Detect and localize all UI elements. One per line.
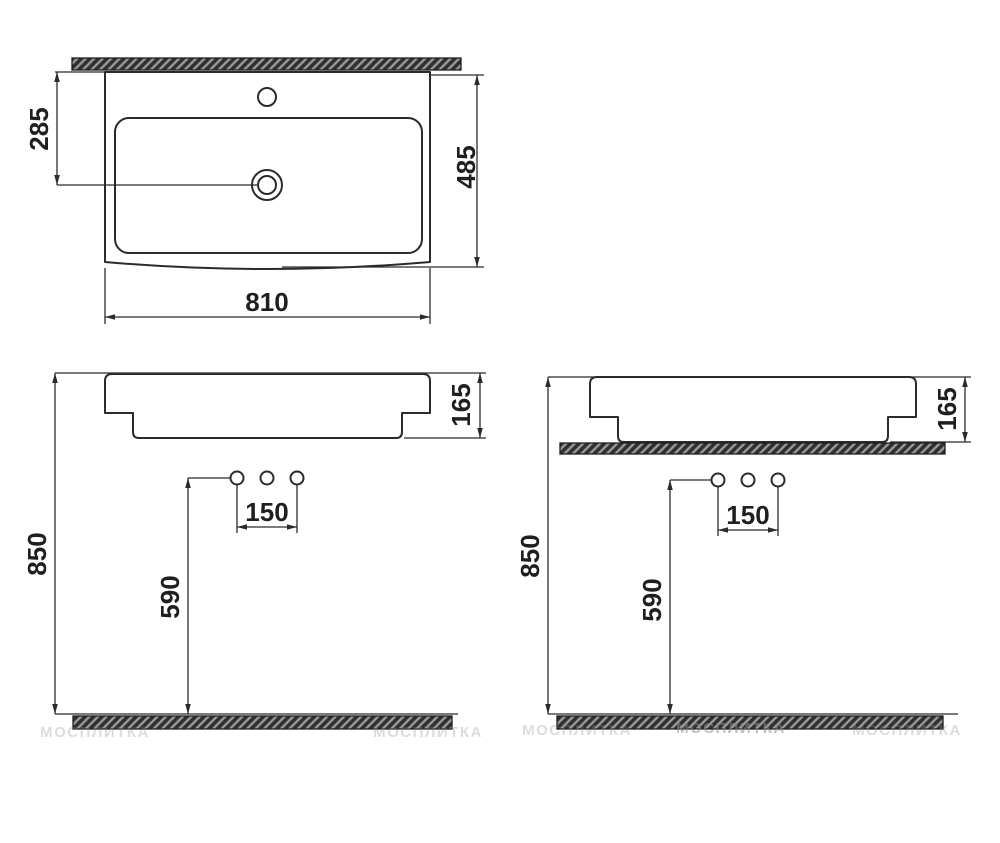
arrowhead xyxy=(185,704,191,714)
front-view-countertop: 850 165 590 150 xyxy=(515,377,971,739)
dim-hole-spacing: 150 xyxy=(718,487,778,537)
dim-label-590: 590 xyxy=(637,578,667,621)
plan-view: 285 485 810 xyxy=(24,58,484,324)
countertop-hatch-bar xyxy=(560,443,945,454)
dim-hole-spacing: 150 xyxy=(237,485,297,534)
dim-rim-height: 850 xyxy=(22,373,58,714)
dim-label-165: 165 xyxy=(932,387,962,430)
arrowhead xyxy=(54,72,60,82)
dim-total-width: 810 xyxy=(105,268,430,324)
dim-drain-height: 590 xyxy=(637,480,673,714)
watermark-text: МОСПЛИТКА xyxy=(40,724,150,741)
watermark-text: МОСПЛИТКА xyxy=(676,720,786,737)
dim-label-810: 810 xyxy=(245,287,288,317)
arrowhead xyxy=(420,314,430,320)
arrowhead xyxy=(477,428,483,438)
drawing-canvas: 285 485 810 850 xyxy=(0,0,1000,843)
sink-profile-outline xyxy=(105,374,430,438)
dim-label-850: 850 xyxy=(22,532,52,575)
dim-label-285: 285 xyxy=(24,107,54,150)
arrowhead xyxy=(545,377,551,387)
washbasin-technical-drawing: 285 485 810 850 xyxy=(0,0,1000,843)
arrowhead xyxy=(477,373,483,383)
mounting-hole xyxy=(231,472,244,485)
arrowhead xyxy=(54,175,60,185)
mounting-hole xyxy=(261,472,274,485)
drain-inner-circle xyxy=(258,176,276,194)
arrowhead xyxy=(962,377,968,387)
arrowhead xyxy=(52,373,58,383)
dim-label-485: 485 xyxy=(451,145,481,188)
tap-hole xyxy=(258,88,276,106)
arrowhead xyxy=(667,480,673,490)
mounting-hole xyxy=(742,474,755,487)
arrowhead xyxy=(105,314,115,320)
mounting-hole xyxy=(712,474,725,487)
watermark-text: МОСПЛИТКА xyxy=(852,722,962,739)
mounting-hole xyxy=(291,472,304,485)
watermark-text: МОСПЛИТКА xyxy=(522,722,632,739)
dim-basin-height: 165 xyxy=(890,377,971,442)
dim-label-590: 590 xyxy=(155,575,185,618)
arrowhead xyxy=(545,704,551,714)
dim-label-150: 150 xyxy=(726,500,769,530)
arrowhead xyxy=(962,432,968,442)
dim-label-850: 850 xyxy=(515,534,545,577)
dim-drain-height: 590 xyxy=(155,478,191,714)
dim-depth-to-drain: 285 xyxy=(24,72,105,185)
mounting-hole xyxy=(772,474,785,487)
wall-hatch-bar xyxy=(72,58,461,70)
dim-total-depth: 485 xyxy=(282,75,484,267)
arrowhead xyxy=(185,478,191,488)
front-view-wall-mounted: 850 165 590 150 xyxy=(22,373,486,741)
arrowhead xyxy=(474,75,480,85)
sink-profile-outline xyxy=(590,377,916,442)
dim-basin-height: 165 xyxy=(404,373,486,438)
watermark-text: МОСПЛИТКА xyxy=(373,724,483,741)
dim-rim-height: 850 xyxy=(515,377,551,714)
dim-label-165: 165 xyxy=(446,383,476,426)
dim-label-150: 150 xyxy=(245,497,288,527)
arrowhead xyxy=(667,704,673,714)
arrowhead xyxy=(474,257,480,267)
arrowhead xyxy=(52,704,58,714)
